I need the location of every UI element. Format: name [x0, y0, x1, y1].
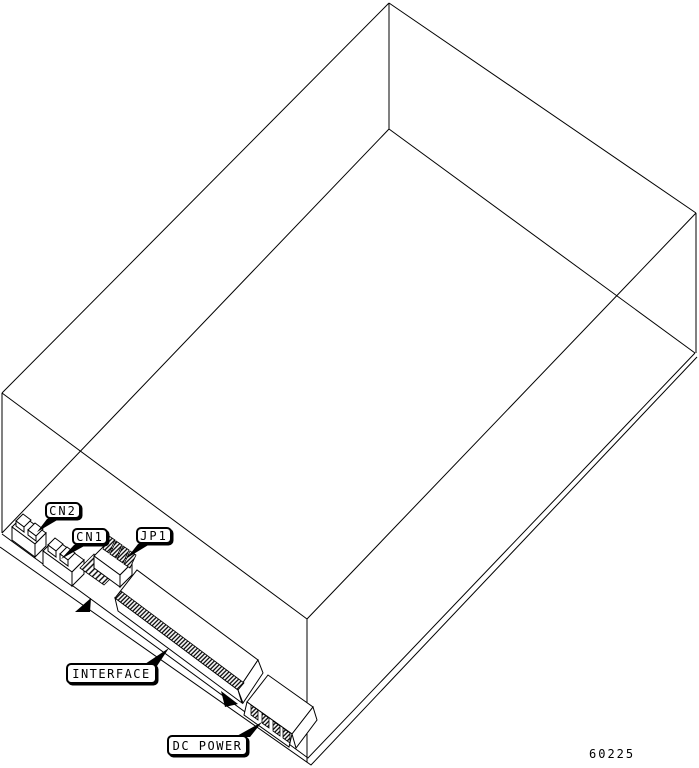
diagram-canvas: [0, 0, 699, 768]
pin1-arrow: [75, 598, 91, 612]
enclosure-wireframe: [2, 3, 696, 762]
callout-cn2: CN2: [45, 502, 81, 519]
figure-number: 60225: [589, 747, 635, 761]
cn2-connector: [12, 514, 46, 557]
callout-jp1: JP1: [136, 527, 172, 544]
callout-dc-power: DC POWER: [167, 735, 248, 756]
callout-interface: INTERFACE: [66, 663, 157, 684]
cn2-callout-tail: [37, 519, 59, 532]
callout-cn1: CN1: [72, 528, 108, 545]
diagram-page: CN2 CN1 JP1 INTERFACE DC POWER 60225: [0, 0, 699, 768]
